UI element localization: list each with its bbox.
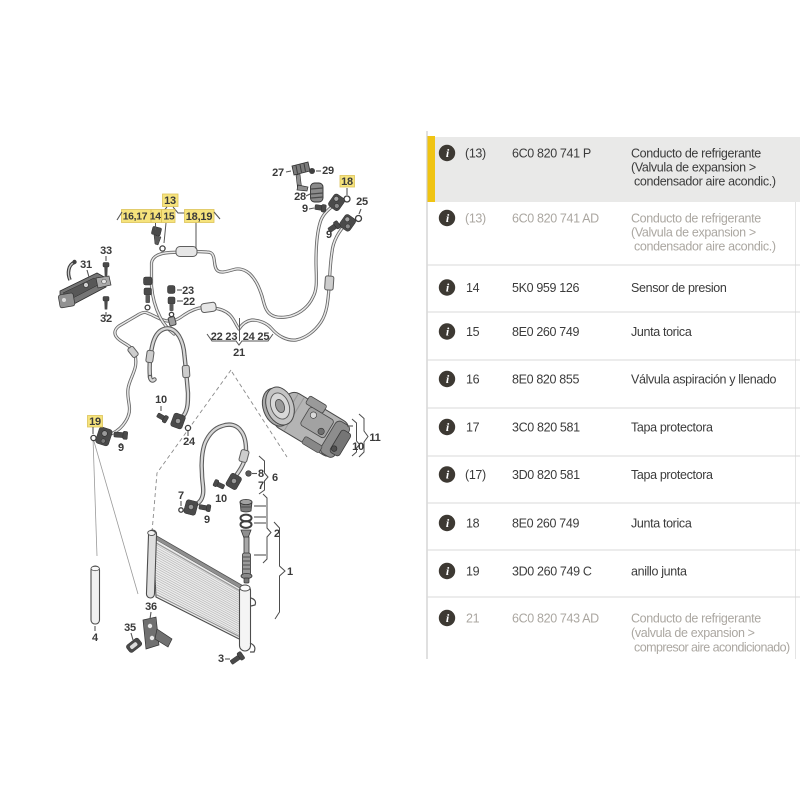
- svg-text:3D0 820 581: 3D0 820 581: [512, 468, 580, 482]
- svg-text:6C0 820 741 P: 6C0 820 741 P: [512, 147, 591, 161]
- svg-text:28: 28: [294, 191, 306, 203]
- svg-text:Junta torica: Junta torica: [631, 325, 692, 339]
- svg-text:7: 7: [258, 480, 264, 492]
- svg-text:condensador aire acondic.): condensador aire acondic.): [634, 175, 776, 189]
- svg-text:Conducto de refrigerante: Conducto de refrigerante: [631, 212, 761, 226]
- svg-text:(Valvula de expansion >: (Valvula de expansion >: [631, 161, 756, 175]
- svg-text:Junta torica: Junta torica: [631, 517, 692, 531]
- svg-text:18: 18: [466, 517, 480, 531]
- svg-text:10: 10: [155, 394, 167, 406]
- svg-text:Tapa protectora: Tapa protectora: [631, 468, 713, 482]
- svg-text:31: 31: [80, 259, 92, 271]
- svg-text:3C0 820 581: 3C0 820 581: [512, 421, 580, 435]
- svg-text:27: 27: [272, 167, 284, 179]
- svg-text:11: 11: [369, 432, 380, 444]
- svg-text:1: 1: [287, 566, 293, 578]
- svg-text:21: 21: [233, 347, 245, 359]
- svg-text:9: 9: [326, 229, 332, 241]
- svg-text:17: 17: [466, 421, 480, 435]
- svg-text:19: 19: [466, 565, 480, 579]
- svg-text:6C0 820 741 AD: 6C0 820 741 AD: [512, 212, 599, 226]
- svg-text:18: 18: [341, 176, 353, 188]
- svg-text:10: 10: [215, 493, 227, 505]
- svg-text:9: 9: [302, 203, 308, 215]
- svg-text:Conducto de refrigerante: Conducto de refrigerante: [631, 612, 761, 626]
- svg-text:18,19: 18,19: [186, 211, 213, 223]
- svg-text:5K0 959 126: 5K0 959 126: [512, 281, 579, 295]
- svg-text:33: 33: [100, 245, 112, 257]
- svg-text:16,17 14 15: 16,17 14 15: [123, 212, 175, 223]
- svg-text:36: 36: [145, 601, 157, 613]
- svg-text:8E0 260 749: 8E0 260 749: [512, 325, 579, 339]
- svg-text:21: 21: [466, 612, 480, 626]
- svg-text:35: 35: [124, 622, 136, 634]
- svg-text:(13): (13): [465, 147, 486, 161]
- svg-text:14: 14: [466, 281, 480, 295]
- svg-text:Sensor de presion: Sensor de presion: [631, 281, 727, 295]
- svg-text:(13): (13): [465, 212, 486, 226]
- svg-text:6: 6: [272, 472, 278, 484]
- svg-text:Tapa protectora: Tapa protectora: [631, 421, 713, 435]
- svg-text:(valvula de expansion >: (valvula de expansion >: [631, 626, 755, 640]
- svg-text:3D0 260 749 C: 3D0 260 749 C: [512, 565, 592, 579]
- svg-text:compresor aire acondicionado): compresor aire acondicionado): [634, 641, 790, 655]
- svg-text:29: 29: [322, 165, 334, 177]
- svg-text:22: 22: [183, 296, 195, 308]
- svg-text:3: 3: [218, 653, 224, 665]
- svg-text:7: 7: [178, 490, 184, 502]
- svg-text:anillo junta: anillo junta: [631, 565, 687, 579]
- svg-text:9: 9: [204, 514, 210, 526]
- svg-text:Conducto de refrigerante: Conducto de refrigerante: [631, 147, 761, 161]
- svg-text:(17): (17): [465, 468, 486, 482]
- svg-text:8: 8: [258, 468, 264, 480]
- svg-text:6C0 820 743 AD: 6C0 820 743 AD: [512, 612, 599, 626]
- svg-text:15: 15: [466, 325, 480, 339]
- svg-text:Válvula aspiración y llenado: Válvula aspiración y llenado: [631, 373, 777, 387]
- svg-text:16: 16: [466, 373, 480, 387]
- svg-text:24: 24: [183, 436, 196, 448]
- svg-text:25: 25: [356, 196, 368, 208]
- svg-text:8E0 820 855: 8E0 820 855: [512, 373, 579, 387]
- svg-text:condensador aire acondic.): condensador aire acondic.): [634, 240, 776, 254]
- svg-text:13: 13: [164, 195, 176, 207]
- svg-text:10: 10: [352, 441, 364, 453]
- svg-text:19: 19: [89, 416, 101, 428]
- svg-text:(Valvula de expansion >: (Valvula de expansion >: [631, 226, 756, 240]
- svg-text:8E0 260 749: 8E0 260 749: [512, 517, 579, 531]
